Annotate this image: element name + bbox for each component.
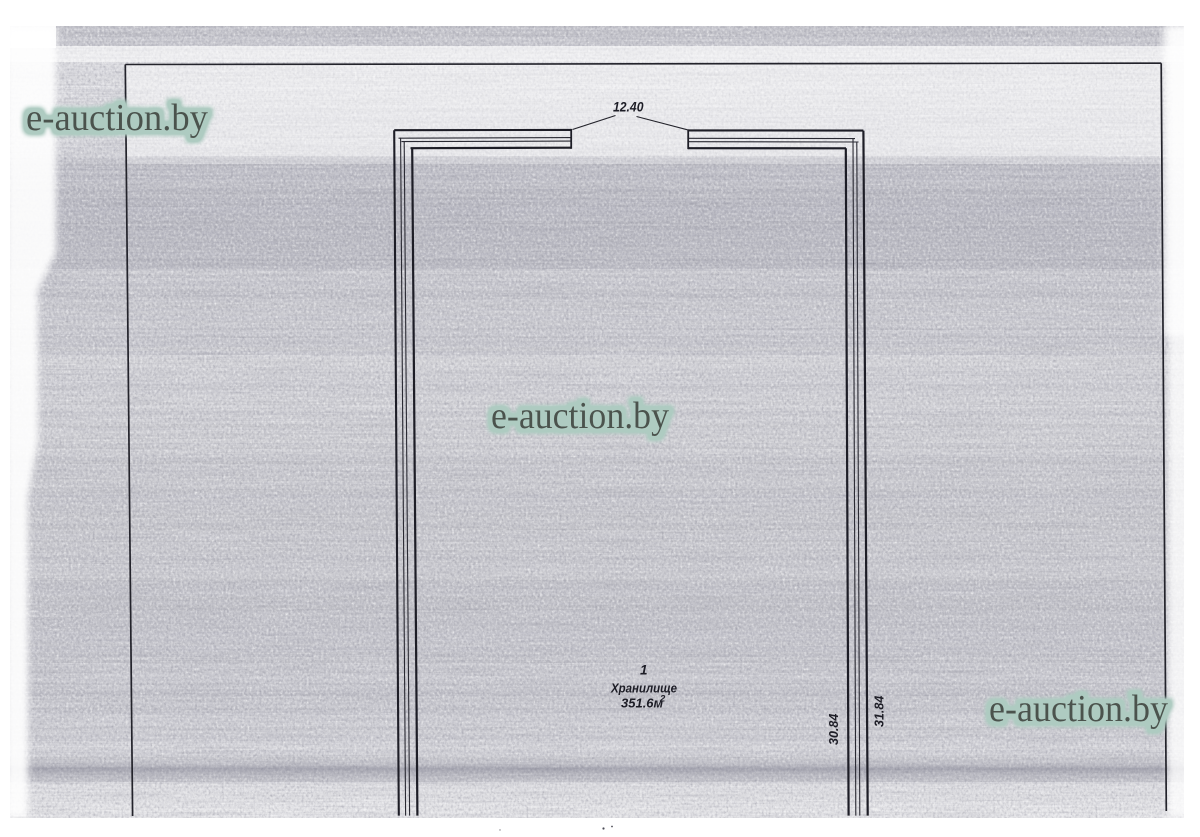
svg-text:Хранилище: Хранилище [610,681,677,696]
svg-text:1: 1 [640,663,648,678]
svg-text:351.6м: 351.6м [621,696,664,711]
svg-text:31.84: 31.84 [873,696,887,727]
svg-text:e-auction.by: e-auction.by [491,395,669,437]
svg-text:e-auction.by: e-auction.by [26,97,208,139]
svg-text:e-auction.by: e-auction.by [989,688,1168,730]
svg-text:30.84: 30.84 [827,714,841,745]
svg-text:2: 2 [659,694,666,705]
svg-text:12.40: 12.40 [613,100,644,115]
